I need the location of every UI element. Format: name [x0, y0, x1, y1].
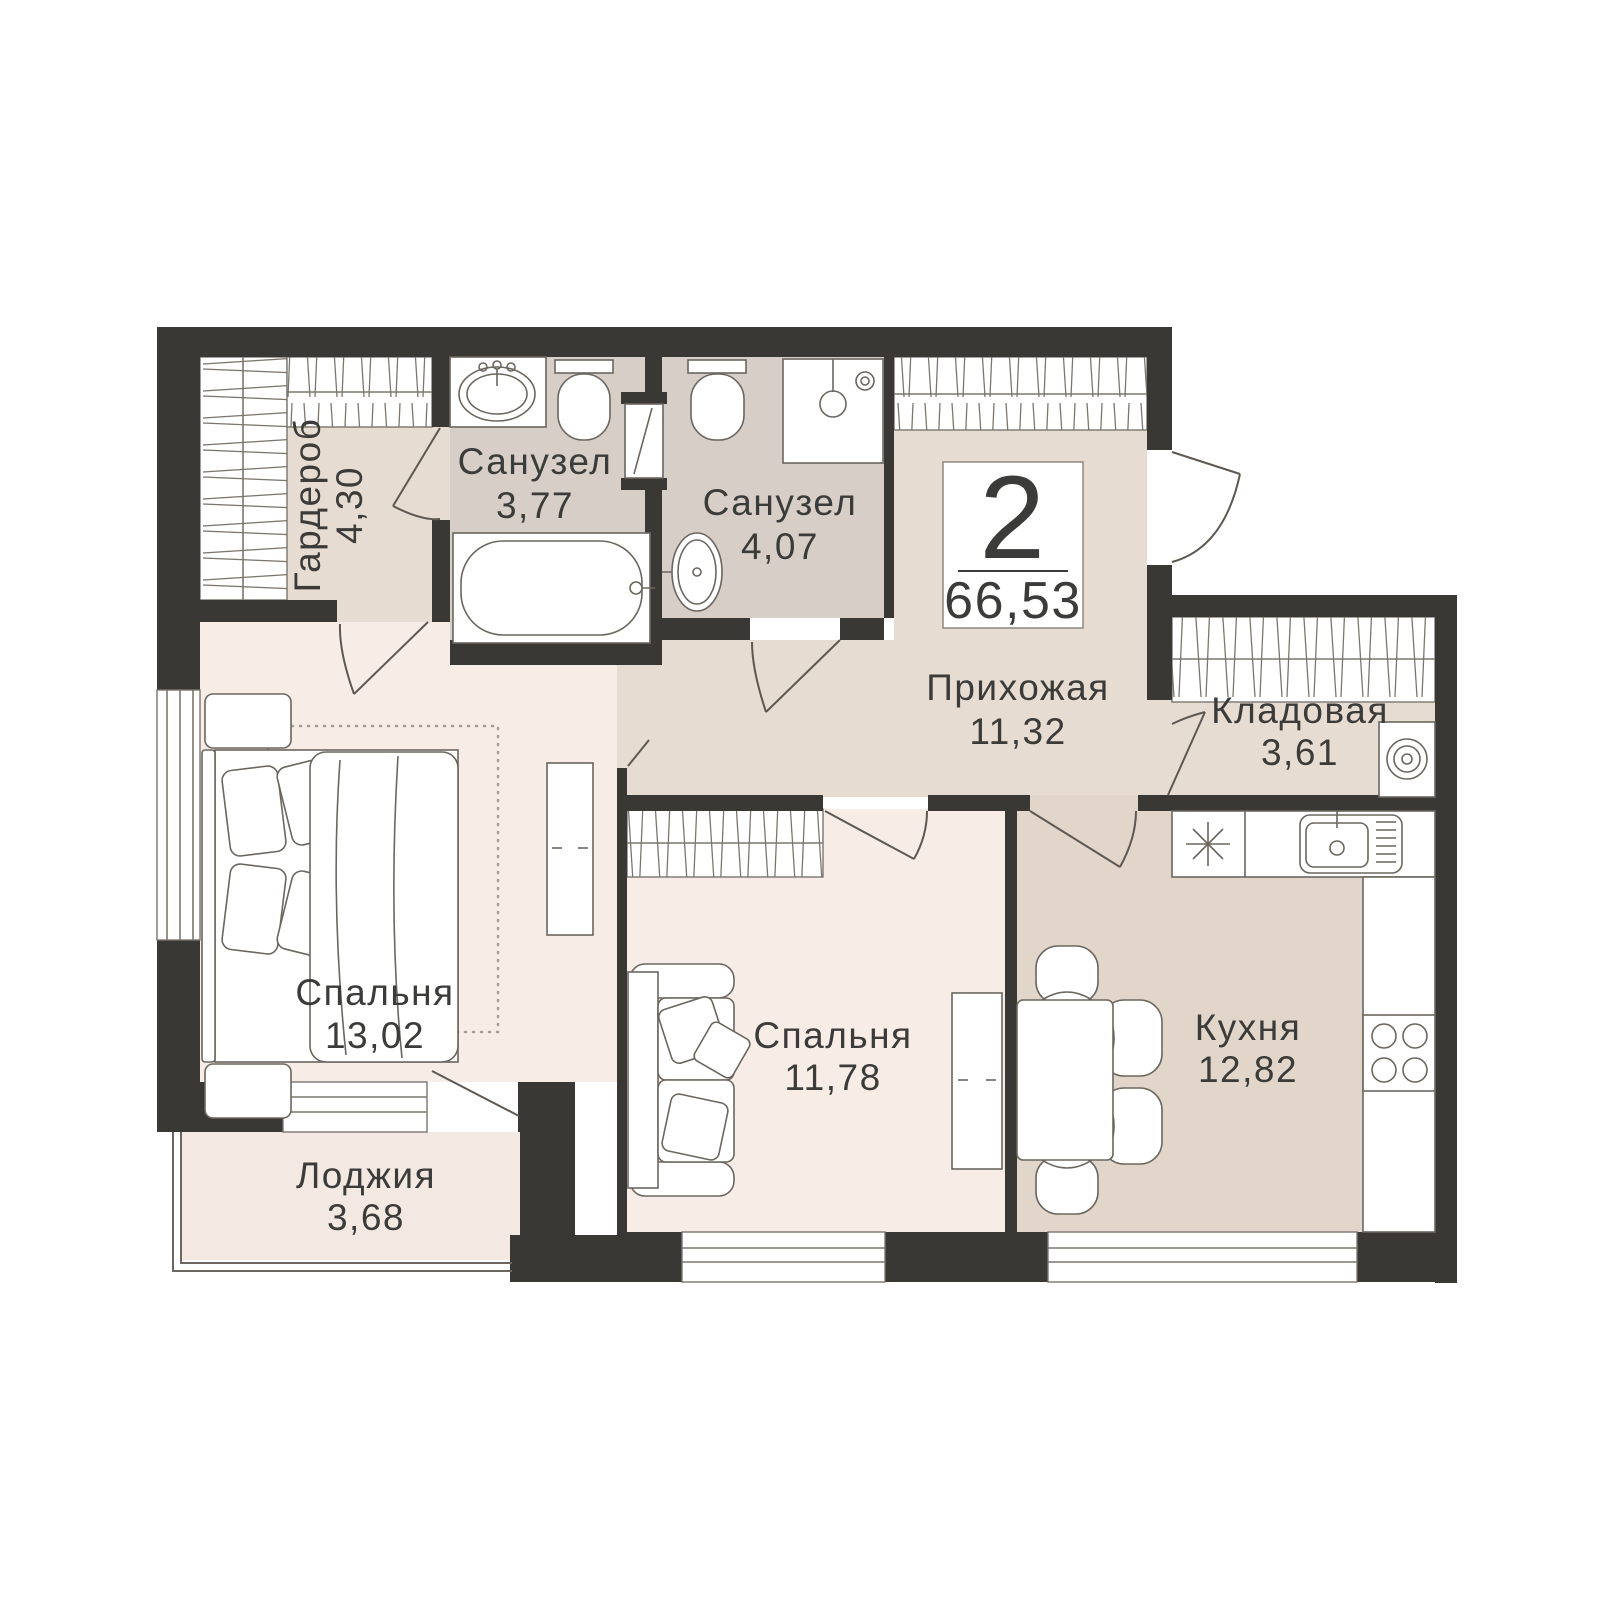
- room-area-label: 11,78: [784, 1057, 881, 1098]
- wardrobe-hatch-icon: [627, 809, 823, 877]
- wall-segment: [617, 1232, 682, 1282]
- chair-icon: [1036, 946, 1098, 1004]
- washing-machine-icon: [1379, 722, 1435, 797]
- wall-segment: [157, 357, 200, 690]
- dresser-icon: [547, 763, 593, 935]
- wall-segment: [1172, 595, 1457, 617]
- nightstand-icon: [205, 1064, 291, 1118]
- room-name-label: Спальня: [295, 972, 454, 1013]
- wall-segment: [432, 520, 450, 622]
- room-area-label: 3,68: [327, 1197, 405, 1238]
- room-name-label: Гардероб: [287, 418, 328, 593]
- wall-segment: [1435, 617, 1457, 1283]
- room-area-label: 12,82: [1198, 1049, 1298, 1090]
- room-area-label: 4,30: [329, 466, 370, 544]
- room-fill-loggia[interactable]: [182, 1132, 520, 1260]
- kitchen-doorway-floor: [1030, 795, 1138, 815]
- room-name-label: Спальня: [753, 1015, 912, 1056]
- wall-segment: [1147, 357, 1172, 450]
- nightstand-icon: [205, 694, 291, 748]
- room-area-label: 13,02: [325, 1015, 425, 1056]
- wall-segment: [884, 357, 894, 618]
- wall-segment: [157, 600, 337, 622]
- area-badge: 2 66,53: [943, 452, 1083, 630]
- toilet-icon: [688, 360, 746, 440]
- room-name-label: Лоджия: [296, 1155, 436, 1196]
- vent-shaft-icon: [621, 392, 667, 490]
- shower-icon: [783, 359, 883, 463]
- room-name-label: Кладовая: [1211, 690, 1389, 731]
- kitchen-counter: [1363, 877, 1435, 1232]
- dining-table-icon: [1017, 1000, 1113, 1160]
- wardrobe-hatch-icon: [200, 357, 287, 600]
- wall-segment: [432, 357, 450, 427]
- room-area-label: 3,77: [496, 485, 574, 526]
- wall-segment: [840, 618, 884, 640]
- wall-segment: [885, 1232, 1048, 1282]
- wall-segment: [520, 1132, 575, 1235]
- room-name-label: Прихожая: [926, 667, 1109, 708]
- room-name-label: Санузел: [703, 482, 858, 523]
- room-area-label: 4,07: [741, 526, 819, 567]
- dresser-icon: [952, 993, 1002, 1169]
- floor-plan: Гардероб 4,30 Санузел 3,77 Санузел 4,07 …: [0, 0, 1620, 1620]
- window: [682, 1232, 885, 1282]
- wardrobe-hatch-icon: [894, 357, 1147, 430]
- sink-icon: [450, 357, 546, 427]
- entrance-door-swing: [1172, 452, 1240, 562]
- wall-segment: [1147, 565, 1172, 617]
- room-name-label: Санузел: [458, 441, 613, 482]
- floor-plan-page: Гардероб 4,30 Санузел 3,77 Санузел 4,07 …: [0, 0, 1620, 1620]
- window: [157, 690, 200, 940]
- room-name-label: Кухня: [1195, 1007, 1302, 1048]
- wall-segment: [157, 327, 1172, 357]
- kitchen-counter: [1172, 811, 1435, 877]
- wall-segment: [1005, 795, 1017, 1232]
- wall-segment: [617, 768, 627, 1232]
- wardrobe-hatch-icon: [287, 357, 432, 427]
- wall-segment: [518, 1082, 575, 1132]
- wall-segment: [617, 795, 823, 811]
- wall-segment: [157, 940, 200, 1082]
- wall-segment: [662, 618, 750, 640]
- stove-icon: [1363, 1015, 1435, 1091]
- badge-total-area: 66,53: [944, 572, 1082, 630]
- room-area-label: 3,61: [1261, 732, 1339, 773]
- toilet-icon: [555, 360, 613, 440]
- window: [283, 1082, 427, 1132]
- chair-icon: [1036, 1156, 1098, 1214]
- wall-segment: [510, 1235, 627, 1282]
- wall-segment: [1147, 617, 1172, 700]
- window: [1048, 1232, 1357, 1282]
- room-area-label: 11,32: [969, 711, 1066, 752]
- bathtub-icon: [453, 533, 655, 643]
- badge-rooms-count: 2: [979, 452, 1046, 584]
